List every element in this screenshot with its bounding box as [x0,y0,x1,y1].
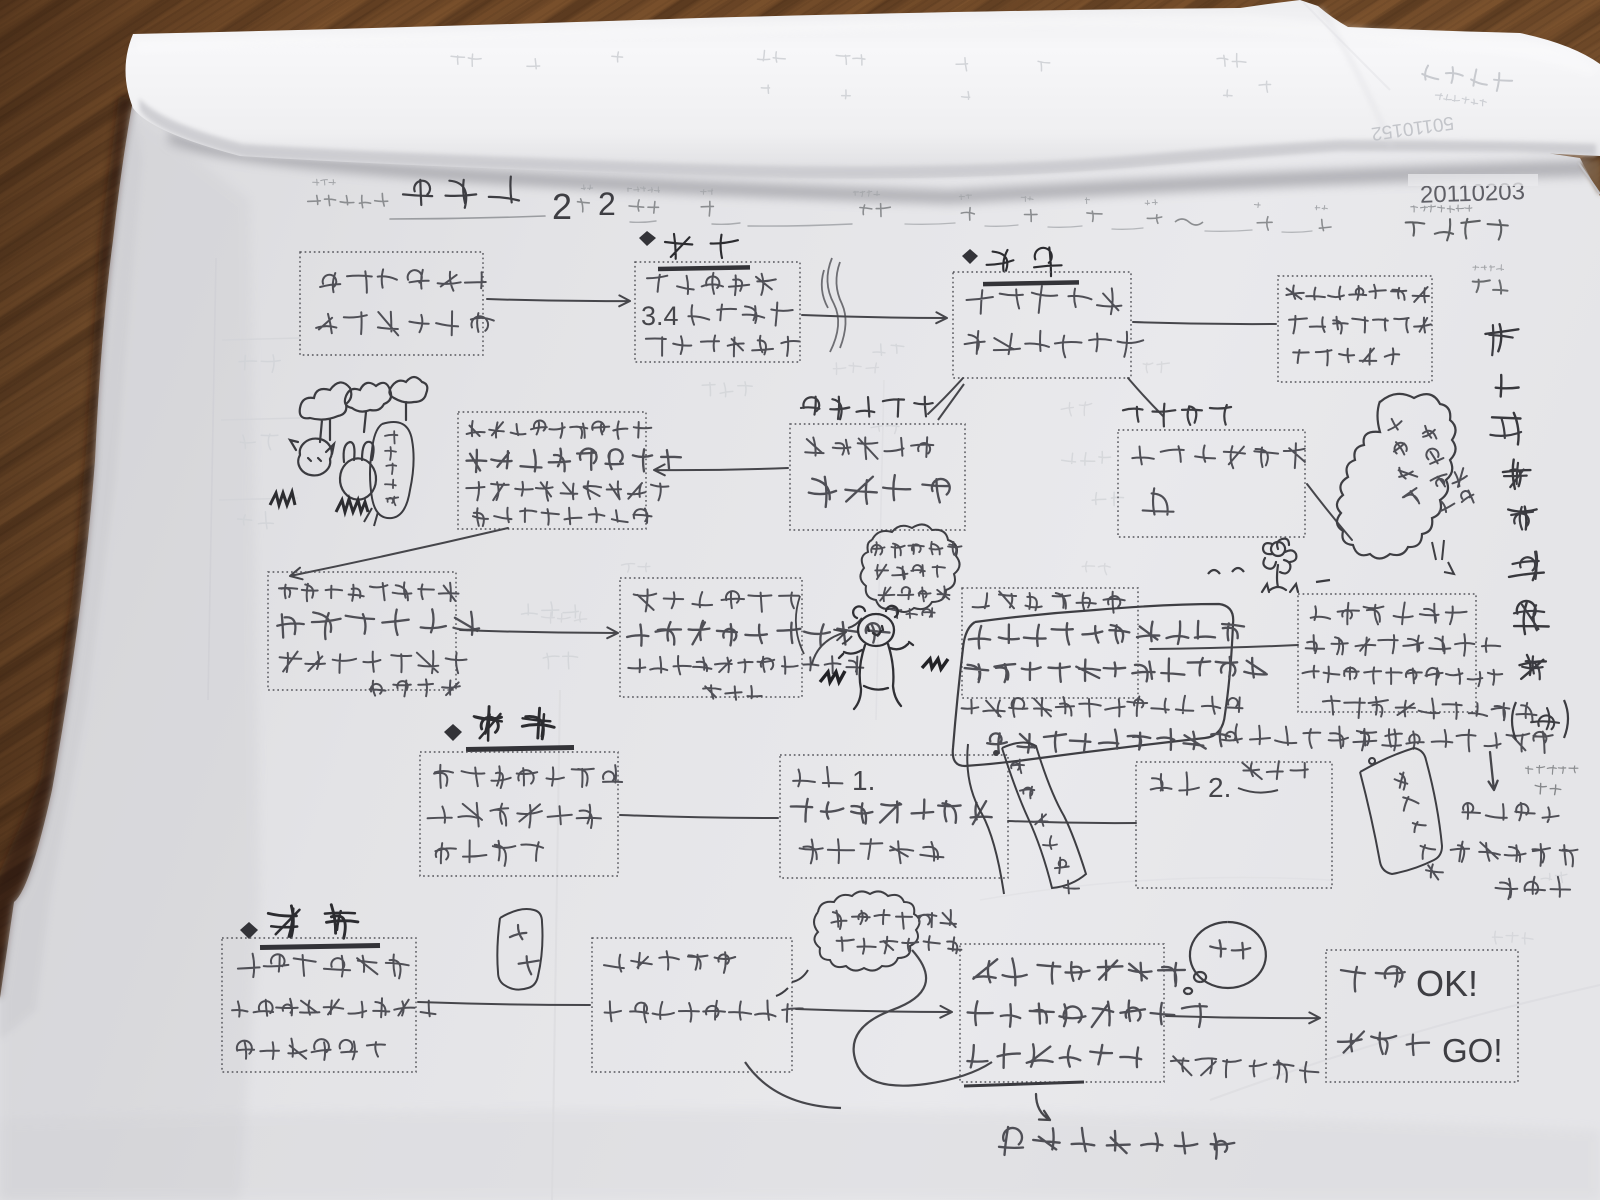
svg-text:2: 2 [552,186,572,227]
svg-text:1.: 1. [852,765,875,796]
svg-text:GO!: GO! [1442,1032,1503,1069]
svg-text:2: 2 [598,186,616,222]
svg-text:3.4: 3.4 [641,301,679,331]
svg-text:OK!: OK! [1416,963,1478,1004]
svg-text:2.: 2. [1208,772,1231,803]
